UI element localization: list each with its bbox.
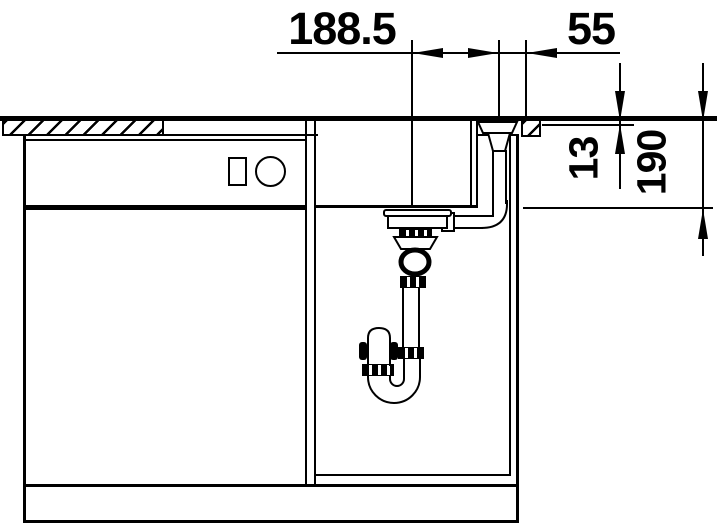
knob-flange [478,122,517,133]
drain-skirt [394,237,437,249]
plumbing-curves [0,0,717,525]
trap-u-outer [368,356,420,403]
trap-dome-cap [368,328,390,348]
technical-drawing: 188.5 55 13 190 [0,0,717,525]
trap-u-inner [390,356,404,386]
ball-joint [401,250,429,274]
elbow-outer-curve [472,200,507,228]
knob-cone [488,133,510,151]
